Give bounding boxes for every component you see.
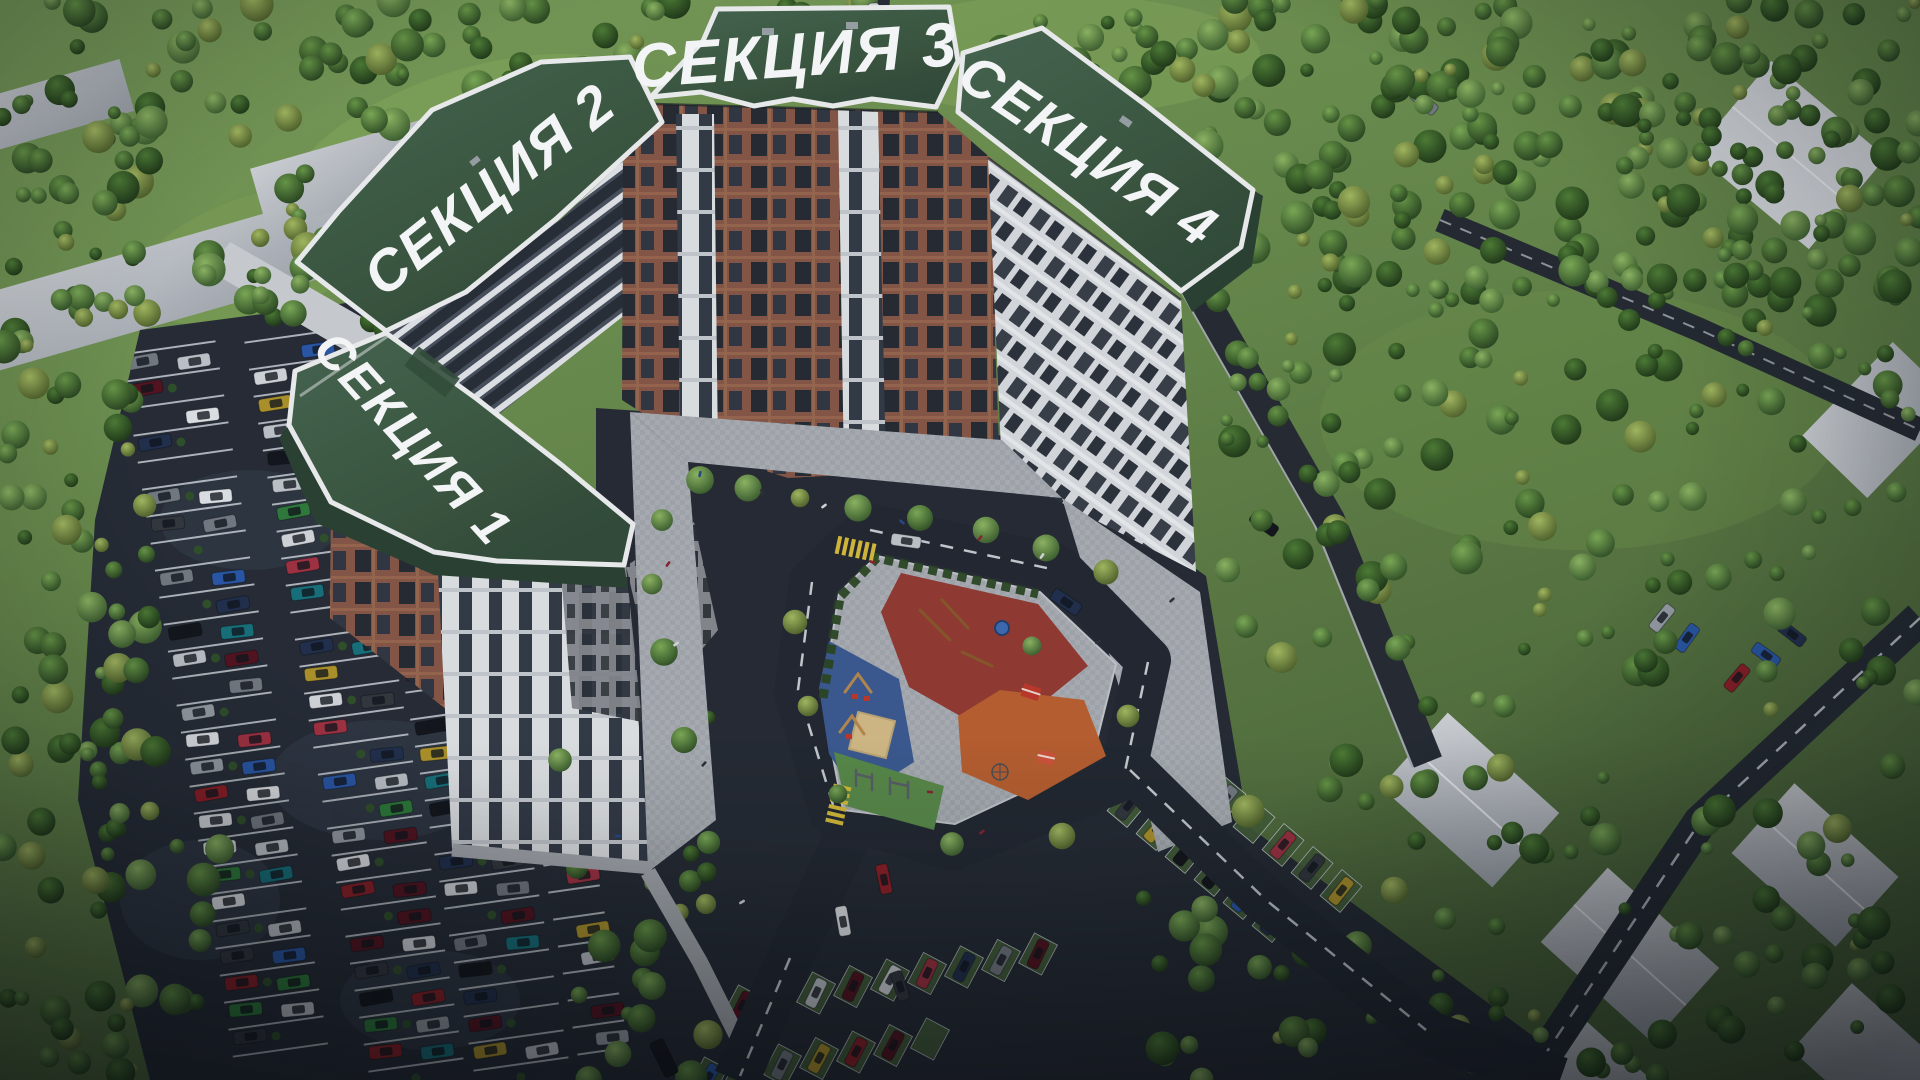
bottom-shade [0, 740, 1920, 1080]
masterplan-render: СЕКЦИЯ 2 СЕКЦИЯ 3 СЕКЦИЯ 4 СЕКЦИЯ 1 [0, 0, 1920, 1080]
residential-complex-masterplan: СЕКЦИЯ 2 СЕКЦИЯ 3 СЕКЦИЯ 4 СЕКЦИЯ 1 [0, 0, 1920, 1080]
